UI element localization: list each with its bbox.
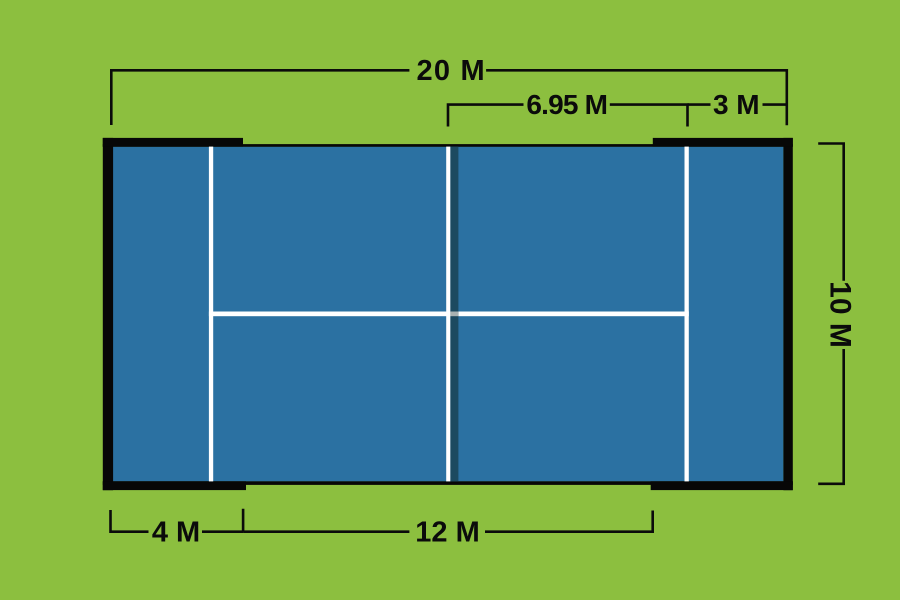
svg-text:12 M: 12 M [415,517,479,549]
svg-text:20 M: 20 M [417,55,486,87]
svg-text:4 M: 4 M [152,517,200,549]
svg-text:6.95 M: 6.95 M [526,89,607,120]
svg-text:3 M: 3 M [713,89,760,120]
svg-text:10 M: 10 M [824,281,857,348]
